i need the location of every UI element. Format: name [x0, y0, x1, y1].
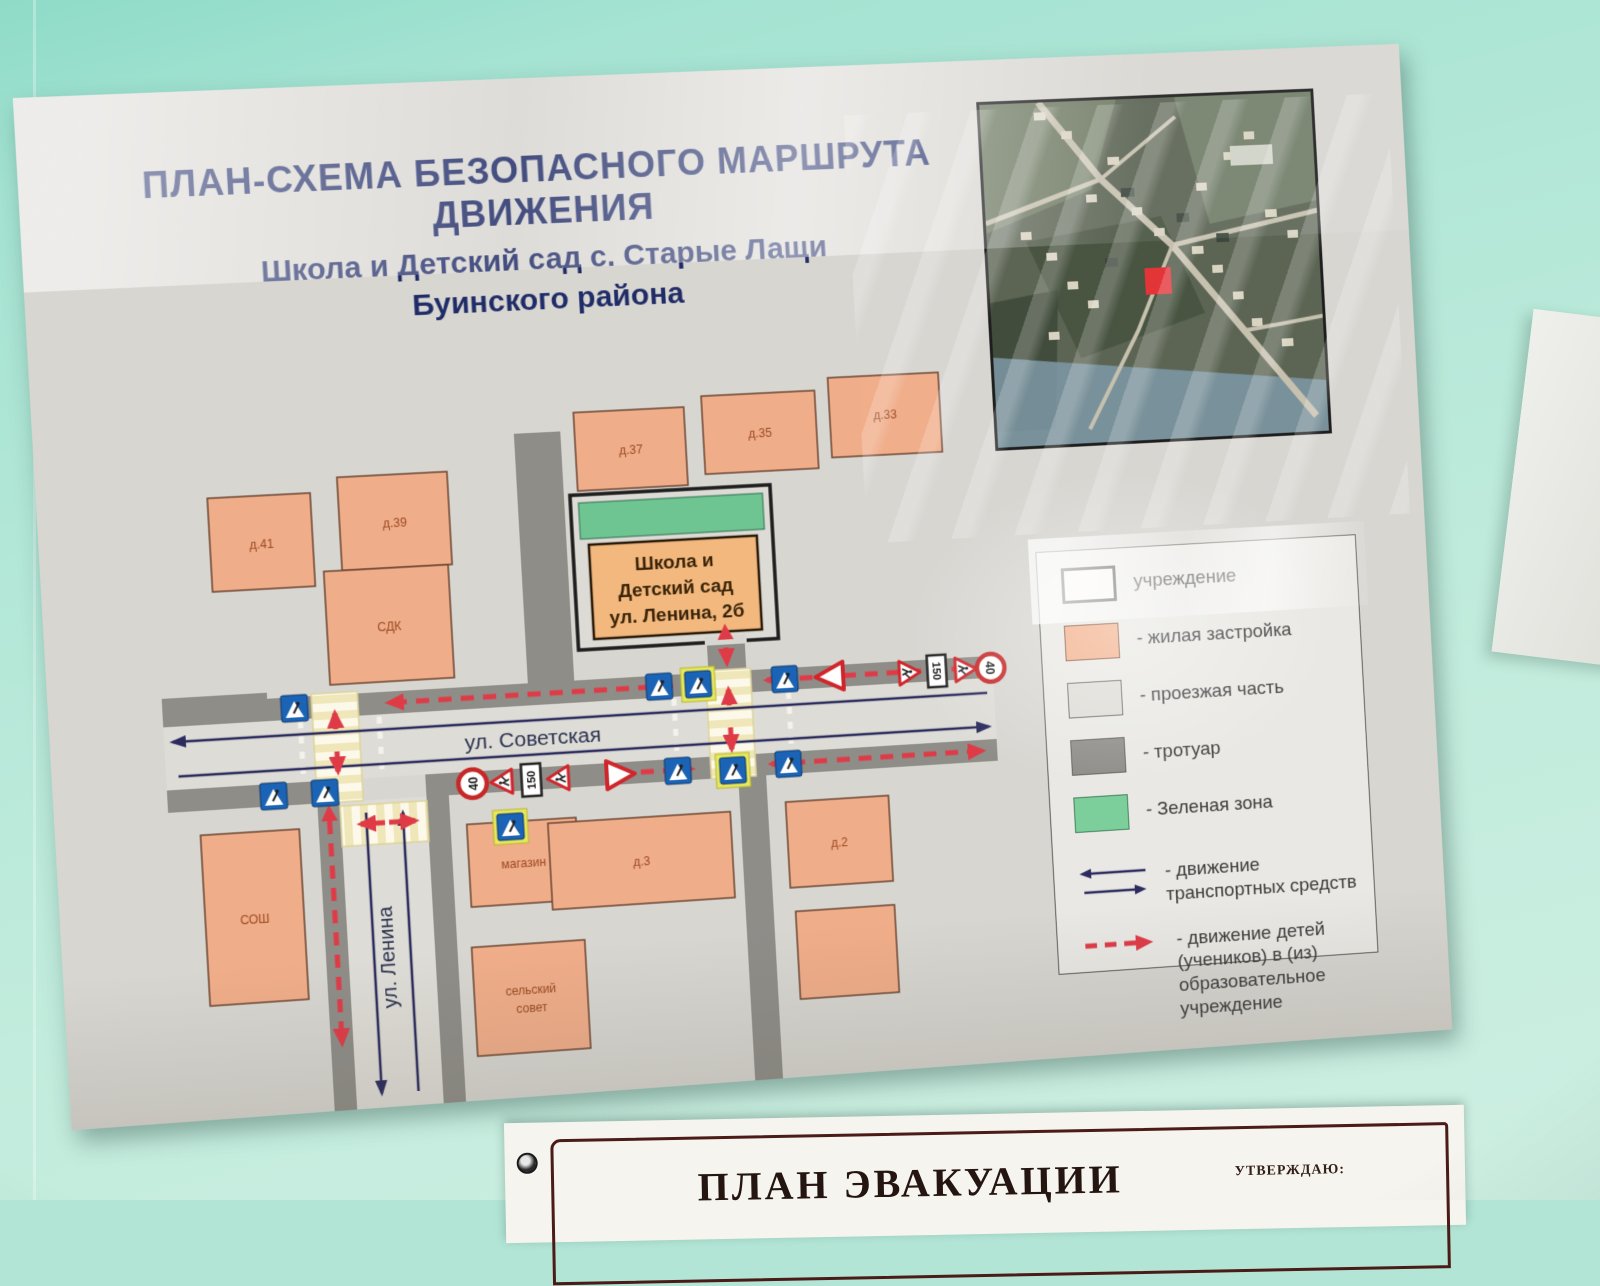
- pedestrian-crossing-sign: [311, 779, 339, 807]
- pedestrian-crossing-sign: [280, 694, 308, 722]
- building-label: магазин: [501, 855, 547, 872]
- children-route-icon: [1081, 929, 1160, 958]
- satellite-photo: [976, 88, 1332, 451]
- building-d33: д.33: [828, 372, 943, 457]
- distance-150-plate: [521, 763, 542, 796]
- pedestrian-crossing-sign: [680, 666, 716, 702]
- building-d35: д.35: [701, 390, 819, 474]
- pedestrian-crossing-sign: [645, 673, 672, 701]
- building-d39: д.39: [337, 472, 452, 571]
- legend-label: - жилая застройка: [1136, 616, 1341, 651]
- pedestrian-crossing-sign: [775, 750, 802, 778]
- speed-limit-40-sign: [458, 769, 488, 799]
- building-unlabeled: [796, 905, 900, 999]
- satellite-large-building: [1230, 144, 1273, 165]
- school-compound: Школа и Детский сад ул. Ленина, 2б: [570, 485, 779, 653]
- pedestrian-crossing-sign: [715, 752, 751, 788]
- building-d2: д.2: [786, 796, 894, 888]
- building-label: д.37: [619, 442, 644, 457]
- building-d3: д.3: [548, 812, 735, 910]
- pedestrian-crossing-sign: [260, 782, 288, 810]
- building-d41: д.41: [207, 493, 315, 592]
- legend-label: - движение детей (учеников) в (из) образ…: [1176, 914, 1381, 1021]
- screw-icon: [517, 1153, 538, 1174]
- approval-text: УТВЕРЖДАЮ:: [1234, 1162, 1345, 1180]
- pedestrian-crossing-sign: [492, 809, 528, 845]
- sidewalk-swatch: [1070, 737, 1126, 776]
- roadway-swatch: [1067, 680, 1123, 719]
- green-zone-swatch: [1073, 794, 1129, 833]
- institution-swatch: [1061, 565, 1117, 604]
- building-d37: д.37: [573, 407, 688, 491]
- upper-vertical-road: [514, 431, 575, 687]
- building-selsky-sovet: сельский совет: [472, 940, 591, 1056]
- route-plan-poster: 40 150: [13, 44, 1453, 1131]
- building-label: д.2: [831, 835, 849, 850]
- building-label: СОШ: [240, 911, 270, 927]
- legend-label: - тротуар: [1142, 729, 1347, 765]
- building-label: д.3: [633, 854, 651, 869]
- evacuation-sign-title: ПЛАН ЭВАКУАЦИИ: [680, 1155, 1141, 1211]
- building-label: д.39: [382, 515, 407, 530]
- lower-vertical-road: [738, 775, 783, 1080]
- school-label-line1: Школа и: [634, 550, 714, 575]
- building-sdk: СДК: [324, 565, 455, 685]
- legend-panel: учреждение - жилая застройка - проезжая …: [1035, 534, 1378, 975]
- speed-limit-40-sign: [976, 653, 1005, 682]
- building-label: д.33: [873, 407, 897, 422]
- location-marker: [1144, 267, 1172, 295]
- pedestrian-crossing-sign: [664, 757, 691, 785]
- residential-swatch: [1064, 623, 1120, 662]
- building-label: СДК: [377, 619, 402, 634]
- building-label: д.41: [249, 537, 274, 552]
- evacuation-plan-sign: ПЛАН ЭВАКУАЦИИ УТВЕРЖДАЮ:: [504, 1105, 1466, 1243]
- pedestrian-crossing-sign: [771, 665, 798, 692]
- legend-label: - проезжая часть: [1139, 672, 1344, 708]
- building-label: д.35: [748, 426, 773, 441]
- satellite-image: [979, 91, 1332, 451]
- vehicle-arrows-icon: [1077, 861, 1149, 903]
- legend-item-vehicle-traffic: - движение транспортных средств: [1054, 846, 1375, 914]
- building-sosh: СОШ: [201, 829, 309, 1006]
- distance-150-plate: [927, 655, 947, 688]
- legend-label: - Зеленая зона: [1145, 786, 1350, 823]
- building-label: совет: [516, 1000, 548, 1016]
- legend-label: учреждение: [1133, 559, 1338, 594]
- legend-label: - движение транспортных средств: [1164, 846, 1370, 906]
